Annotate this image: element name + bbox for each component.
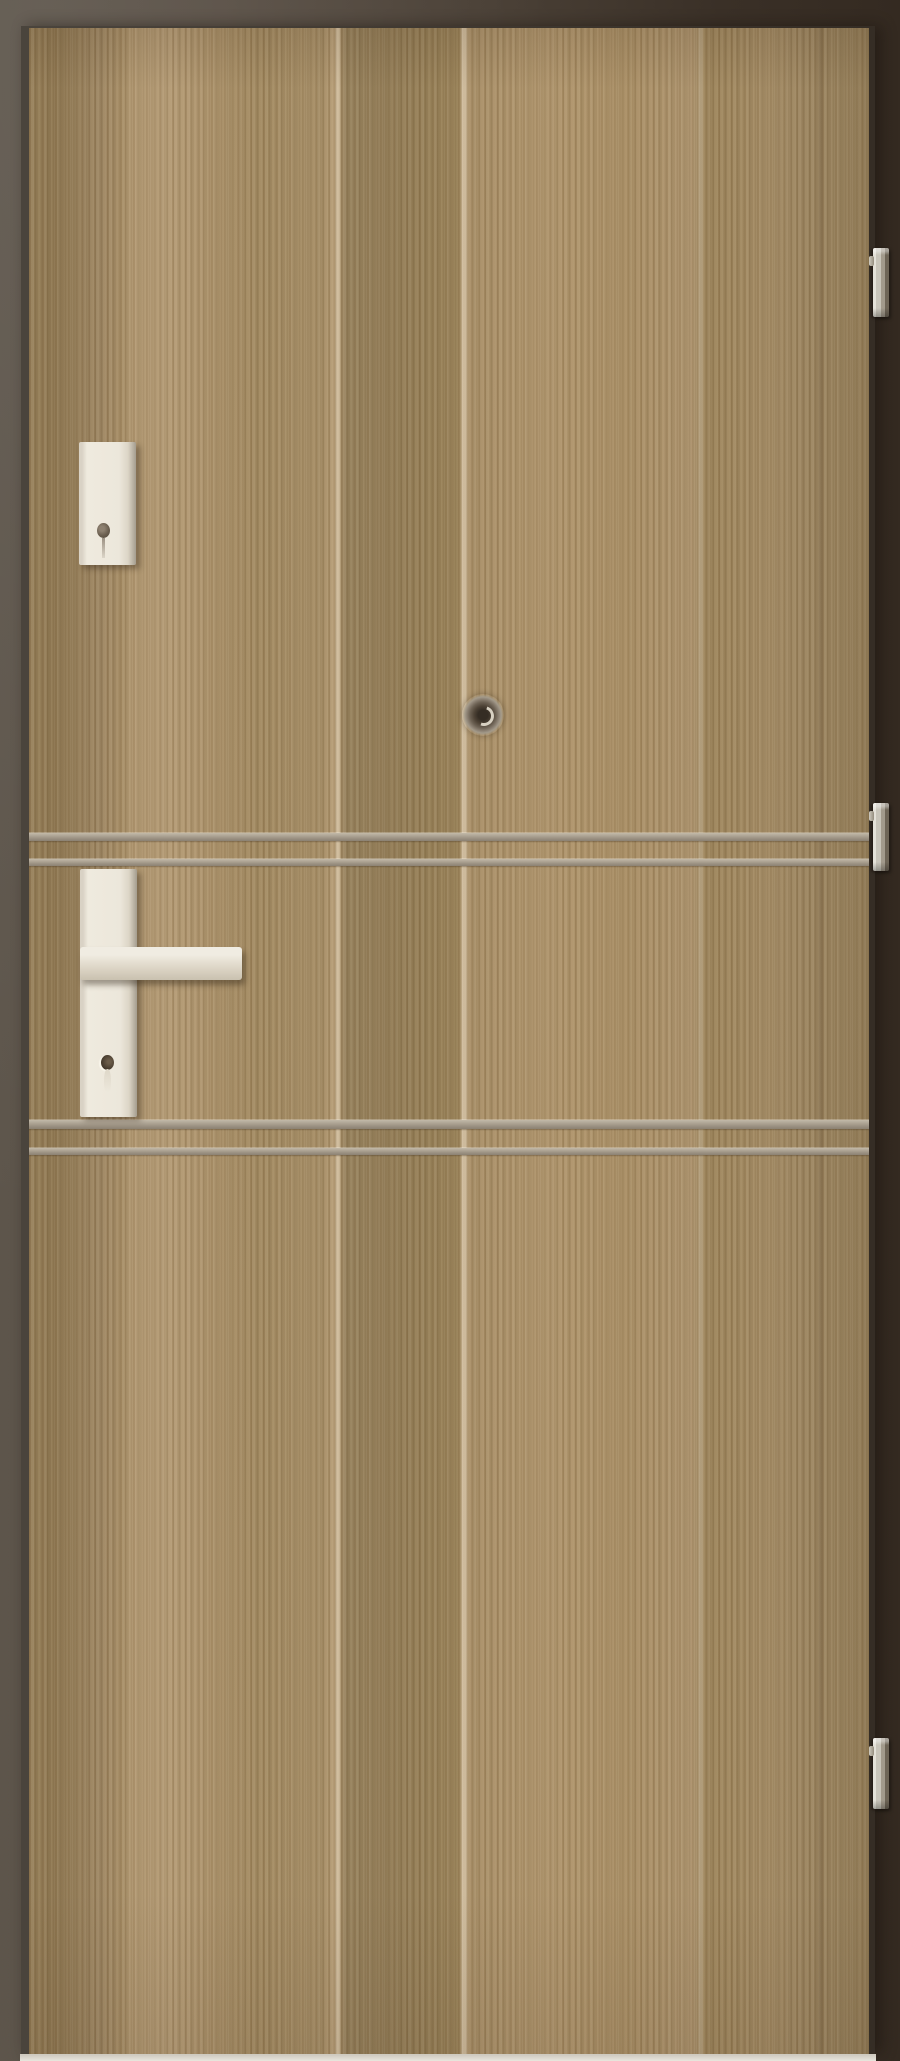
door-handle	[80, 947, 242, 980]
door-panel	[21, 26, 875, 2054]
floor-edge	[20, 2054, 876, 2061]
handle-backplate	[80, 869, 137, 1117]
hinge-pin	[869, 1746, 874, 1756]
inlay-strip	[29, 833, 869, 841]
door-wood-surface	[29, 28, 869, 2054]
photo-background	[0, 0, 900, 2061]
hinge-pin	[869, 256, 874, 266]
hinge-top	[873, 248, 889, 317]
inlay-strip	[29, 1120, 869, 1129]
hinge-pin	[869, 811, 874, 821]
hinge-bottom	[873, 1738, 889, 1809]
inlay-strip	[29, 1148, 869, 1155]
lock-cylinder-keyhole-icon	[101, 1055, 114, 1070]
deadbolt-keyhole-icon	[97, 523, 110, 538]
peephole-highlight	[471, 703, 498, 730]
peephole-icon	[462, 694, 504, 736]
lock-cylinder-slot	[104, 1069, 111, 1095]
hinge-middle	[873, 803, 889, 871]
inlay-strip	[29, 859, 869, 866]
deadbolt-escutcheon	[79, 442, 136, 565]
deadbolt-keyhole-slot	[102, 538, 105, 558]
